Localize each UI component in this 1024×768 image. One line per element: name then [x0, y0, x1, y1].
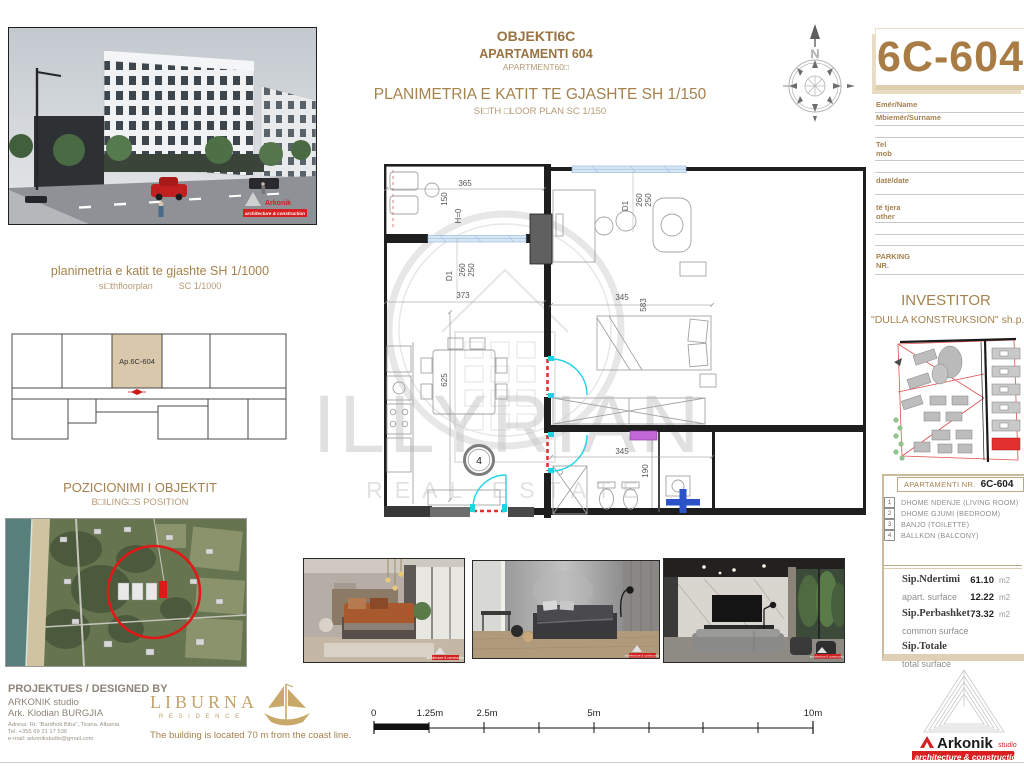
- legend-room-4: 4 BALLKON (BALCONY): [884, 530, 1024, 541]
- bed: [533, 600, 617, 639]
- legend-header-label: APARTAMENTI NR.: [904, 480, 976, 489]
- surface-row-label: common surface: [902, 626, 969, 636]
- keyplan-title: planimetria e katit te gjashte SH 1/1000: [30, 264, 290, 278]
- curtain: [788, 567, 796, 641]
- wardrobe: [553, 398, 705, 424]
- dim-door-left: D1: [445, 270, 454, 281]
- svg-text:Arkonik: Arkonik: [937, 735, 994, 752]
- site-rect-marker: [159, 581, 167, 598]
- compass-arrows: [783, 60, 855, 122]
- position-title: POZICIONIMI I OBJEKTIT: [20, 480, 260, 495]
- keyplan-subtitle-row: si□thfloorplan SC 1/1000: [30, 281, 290, 291]
- surface-row-unit: m2: [999, 593, 1010, 602]
- armchair: [653, 198, 691, 252]
- project-title: OBJEKTI6C: [376, 28, 696, 44]
- nightstand: [700, 374, 716, 387]
- apartment-title-en: APARTMENT60□: [376, 62, 696, 72]
- other-label-en: other: [876, 213, 895, 222]
- parking-nr-label: NR.: [876, 262, 889, 271]
- liburna-note: The building is located 70 m from the co…: [150, 730, 370, 741]
- north-arrow: [810, 24, 820, 39]
- key-plan-drawing: Ap.6C-604: [8, 328, 290, 444]
- toilet: [598, 482, 615, 509]
- name-label: Emër/Name: [876, 101, 917, 110]
- compass-n-label: N: [811, 47, 820, 61]
- chair: [421, 384, 432, 399]
- drawing-sheet: Arkonik architecture & construction OBJE…: [0, 0, 1024, 768]
- desk-chair: [595, 217, 613, 235]
- scale-filled-segment: [374, 724, 429, 731]
- pillow: [688, 319, 708, 343]
- legend-divider: [884, 565, 1022, 566]
- investor-title: INVESTITOR: [868, 292, 1024, 309]
- surname-label: Mbiemër/Surname: [876, 114, 941, 123]
- surface-row-unit: m2: [999, 610, 1010, 619]
- kitchen-cabinet: [387, 438, 411, 472]
- blank-line-1: [875, 137, 1024, 138]
- liburna-name: LIBURNA: [150, 692, 250, 713]
- room-number-badge: 3: [884, 519, 895, 530]
- desk: [553, 190, 595, 262]
- room-number-badge: 4: [884, 530, 895, 541]
- stool: [511, 625, 523, 637]
- scale-label-5: 5m: [587, 708, 600, 719]
- stove: [387, 404, 411, 434]
- plan-subtitle: SI□TH □LOOR PLAN SC 1/150: [330, 106, 750, 117]
- surname-line: [875, 125, 1024, 126]
- other-line: [875, 222, 1024, 223]
- blank-line-3: [875, 234, 1024, 235]
- surface-row-label: Sip.Perbashket: [902, 608, 970, 619]
- svg-text:Arkonik: Arkonik: [265, 200, 291, 207]
- building-exterior-photo: Arkonik architecture & construction: [8, 27, 317, 225]
- balcony-table: [425, 183, 439, 197]
- svg-text:studio: studio: [998, 742, 1017, 749]
- balcony-chair: [390, 196, 418, 214]
- kitchen-sink: [387, 376, 411, 400]
- photo-bedroom-gray: architecture & construction: [472, 560, 660, 659]
- bed: [342, 598, 416, 639]
- dim-bedroom-height: 583: [639, 298, 648, 312]
- dim-h0: H=0: [454, 208, 463, 223]
- room-number-marker: 4: [465, 446, 494, 475]
- legend-room-3: 3 BANJO (TOILETTE): [884, 519, 1024, 530]
- legend-divider-2: [884, 568, 1022, 569]
- towel-rail: [630, 431, 657, 440]
- bottom-divider: [0, 762, 1024, 763]
- surface-row-value: 73.32: [962, 609, 994, 620]
- bidet: [622, 482, 639, 509]
- arkonik-triangle-mark: [924, 670, 1004, 732]
- sofa: [692, 629, 784, 653]
- chair: [496, 384, 507, 399]
- apartment-title: APARTAMENTI 604: [376, 47, 696, 61]
- tv: [712, 595, 762, 622]
- surface-row-value: 12.22: [962, 592, 994, 603]
- designer-address: Adresa: Rr. "Bardhok Biba", Tirana, Alba…: [8, 722, 121, 728]
- balcony-chair: [390, 172, 418, 190]
- designer-title: PROJEKTUES / DESIGNED BY: [8, 683, 168, 695]
- motorcycle: [25, 196, 47, 203]
- scale-label-0: 0: [371, 708, 376, 719]
- side-table: [319, 618, 333, 632]
- plan-title: PLANIMETRIA E KATIT TE GJASHTE SH 1/150: [330, 86, 750, 104]
- shaft-column: [530, 214, 552, 264]
- dim-balcony-depth: 150: [440, 192, 449, 206]
- scale-label-125: 1.25m: [417, 708, 443, 719]
- surface-row-label: Sip.Ndertimi: [902, 574, 960, 585]
- sideboard: [428, 490, 500, 505]
- cabinet: [680, 262, 706, 276]
- parking-line: [875, 274, 1024, 275]
- dim-door-right: D1: [621, 200, 630, 211]
- designer-email: e-mail: arkonikstudio@gmail.com: [8, 736, 93, 742]
- date-line: [875, 194, 1024, 195]
- designer-studio: ARKONIK studio: [8, 697, 79, 708]
- liburna-ship-icon: [256, 680, 316, 732]
- site-plan: [888, 334, 1024, 466]
- site-unit-highlight: [992, 438, 1020, 450]
- photo-living-room: architecture & construction: [663, 558, 845, 663]
- scale-bar: 0 1.25m 2.5m 5m 10m: [355, 700, 830, 742]
- blank-line-4: [875, 245, 1024, 246]
- blank-line-2: [875, 172, 1024, 173]
- position-subtitle: B□ILING□S POSITION: [20, 497, 260, 508]
- dim-bath-width: 345: [615, 447, 629, 456]
- window: [788, 567, 845, 641]
- compass-rose: N: [768, 22, 862, 122]
- legend-header-code: 6C-604: [981, 479, 1014, 490]
- surface-row-label: apart. surface: [902, 592, 957, 602]
- dim-bedroom-width: 345: [615, 293, 629, 302]
- chair: [496, 358, 507, 373]
- unit-code: 6C-604: [877, 33, 1024, 82]
- room-number-badge: 2: [884, 508, 895, 519]
- svg-text:architecture & construction: architecture & construction: [427, 656, 465, 660]
- mob-label: mob: [876, 150, 892, 159]
- keyplan-scale: SC 1/1000: [179, 281, 222, 291]
- surface-row-label: Sip.Totale: [902, 641, 947, 652]
- plan-title-block: PLANIMETRIA E KATIT TE GJASHTE SH 1/150 …: [330, 86, 750, 117]
- unit-code-panel: 6C-604: [875, 28, 1024, 90]
- armchair: [790, 637, 812, 655]
- dim-door-right-a: 260: [635, 193, 644, 207]
- surface-row-value: 61.10: [962, 575, 994, 586]
- legend-room-list: 1 DHOME NDENJE (LIVING ROOM) 2 DHOME GJU…: [884, 497, 1024, 541]
- pillow: [688, 343, 708, 366]
- svg-text:architecture & construction: architecture & construction: [625, 654, 660, 658]
- designer-architect: Ark. Klodian BURGJIA: [8, 708, 103, 719]
- photo-bedroom-warm: architecture & construction: [303, 558, 465, 663]
- legend-room-1: 1 DHOME NDENJE (LIVING ROOM): [884, 497, 1024, 508]
- chair: [421, 358, 432, 373]
- scale-label-10: 10m: [804, 708, 823, 719]
- desk: [481, 611, 511, 615]
- fridge: [387, 346, 411, 372]
- dim-balcony-width: 365: [458, 179, 472, 188]
- dim-bath-height: 190: [641, 464, 650, 478]
- floor-plan: 365 150 H=0 D1 260 250 373 D1 260 250 34…: [370, 148, 876, 528]
- scale-label-25: 2.5m: [476, 708, 497, 719]
- keyplan-unit-label: Ap.6C-604: [119, 357, 155, 366]
- stool: [523, 632, 533, 642]
- liburna-subtitle: R E S I D E N C E: [150, 714, 250, 720]
- title-block: OBJEKTI6C APARTAMENTI 604 APARTMENT60□: [376, 28, 696, 72]
- legend-room-2: 2 DHOME GJUMI (BEDROOM): [884, 508, 1024, 519]
- dim-door-left-a: 260: [458, 263, 467, 277]
- dim-door-right-b: 250: [644, 193, 653, 207]
- dim-door-left-b: 250: [467, 263, 476, 277]
- svg-text:architecture & construction: architecture & construction: [245, 211, 305, 216]
- svg-text:architecture & construction: architecture & construction: [810, 655, 845, 659]
- arkonik-wordmark: Arkonik studio: [920, 735, 1017, 752]
- room-number-text: 4: [476, 455, 482, 467]
- chair: [470, 338, 485, 349]
- dim-living-height: 625: [440, 373, 449, 387]
- arkonik-tagline: architecture & construction: [915, 753, 1022, 760]
- keyplan-subtitle: si□thfloorplan: [99, 281, 153, 291]
- tel-line: [875, 160, 1024, 161]
- date-label: datë/date: [876, 177, 909, 186]
- room-number-badge: 1: [884, 497, 895, 508]
- investor-company: "DULLA KONSTRUKSION" sh.p.k: [871, 314, 1024, 326]
- surface-row-unit: m2: [999, 576, 1010, 585]
- dim-living-width: 373: [456, 291, 470, 300]
- arkonik-logo: Arkonik studio architecture & constructi…: [912, 662, 1024, 760]
- shower: [553, 466, 587, 514]
- legend-header: APARTAMENTI NR. 6C-604: [897, 477, 1024, 492]
- designer-tel: Tel. +355 69 21 17 536: [8, 729, 67, 735]
- satellite-image: [5, 518, 247, 667]
